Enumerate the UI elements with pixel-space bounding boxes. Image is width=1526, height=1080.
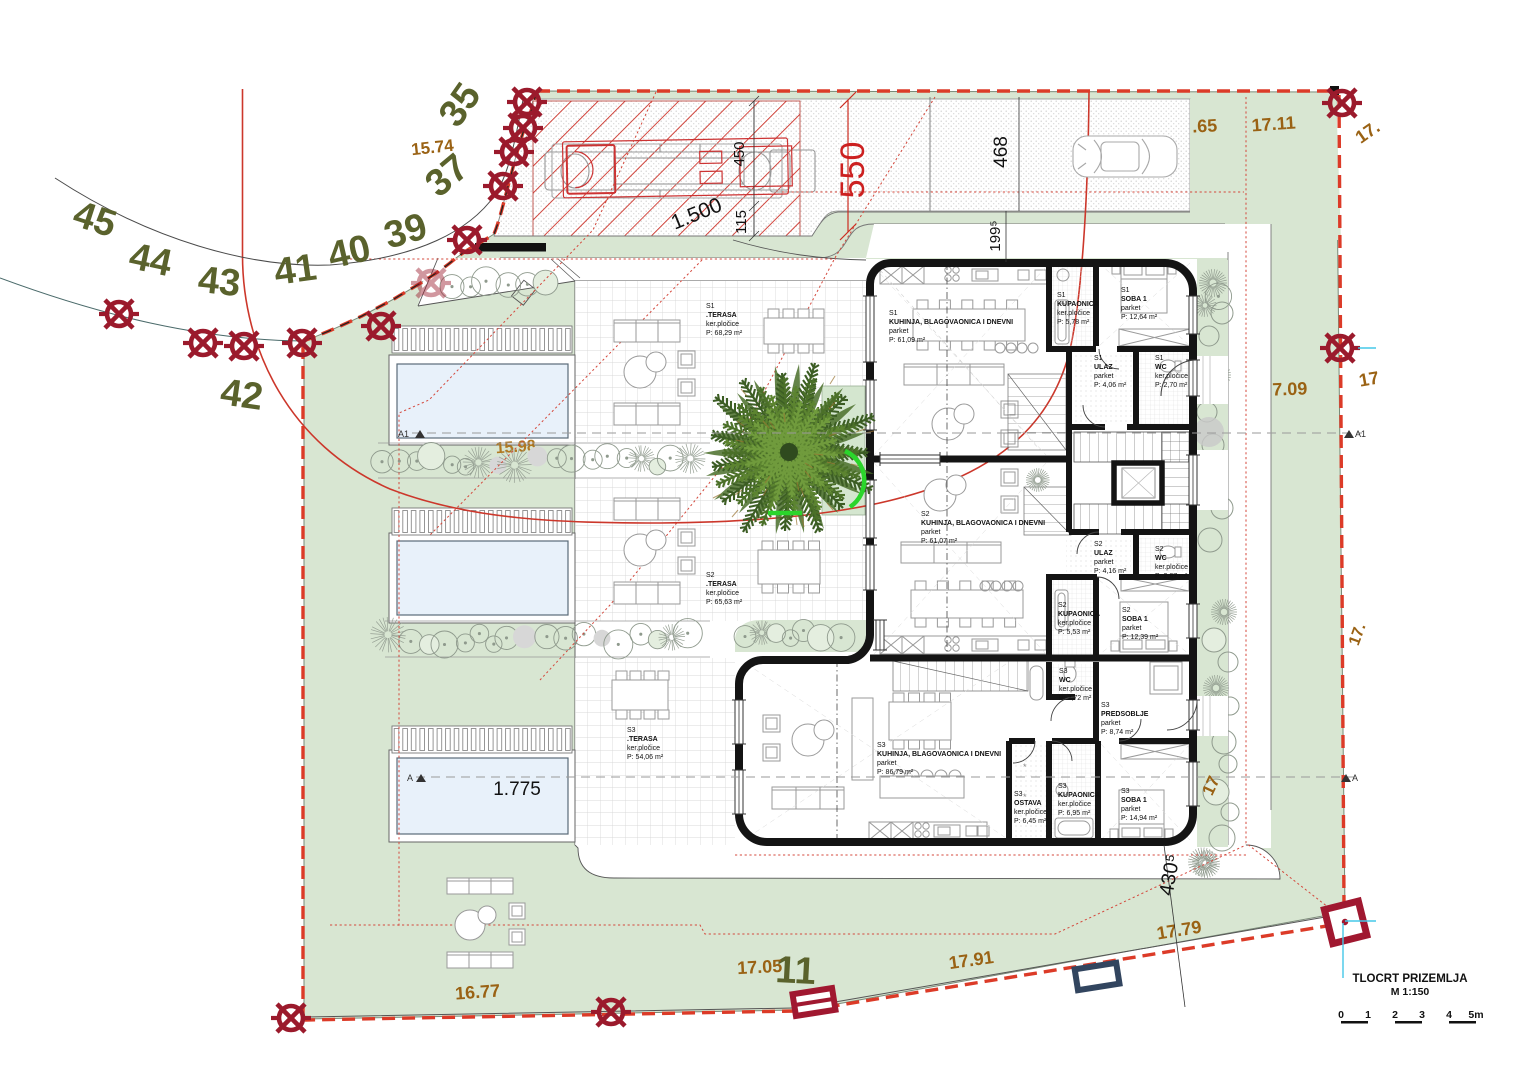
svg-text:P: 8,74 m²: P: 8,74 m² bbox=[1101, 729, 1134, 736]
svg-text:KUHINJA, BLAGOVAONICA I DNEVNI: KUHINJA, BLAGOVAONICA I DNEVNI bbox=[877, 751, 1001, 758]
svg-text:ker.pločice: ker.pločice bbox=[1155, 373, 1188, 380]
svg-text:4: 4 bbox=[1446, 1009, 1452, 1021]
svg-text:KUPAONICA: KUPAONICA bbox=[1057, 301, 1099, 308]
svg-text:.65: .65 bbox=[1192, 115, 1218, 136]
svg-text:P: 2,70 m²: P: 2,70 m² bbox=[1155, 382, 1188, 389]
svg-text:A: A bbox=[1352, 773, 1358, 783]
svg-text:S3: S3 bbox=[1101, 702, 1110, 709]
svg-text:KUHINJA, BLAGOVAONICA I DNEVNI: KUHINJA, BLAGOVAONICA I DNEVNI bbox=[921, 520, 1045, 527]
svg-text:P: 65,63 m²: P: 65,63 m² bbox=[706, 599, 743, 606]
svg-text:ker.pločice: ker.pločice bbox=[1059, 686, 1092, 693]
svg-text:P: 12,39 m²: P: 12,39 m² bbox=[1122, 634, 1159, 641]
svg-text:P: 86,79 m²: P: 86,79 m² bbox=[877, 769, 914, 776]
svg-text:A: A bbox=[407, 773, 413, 783]
svg-text:S1: S1 bbox=[1121, 287, 1130, 294]
svg-text:P: 14,94 m²: P: 14,94 m² bbox=[1121, 815, 1158, 822]
svg-text:SOBA 1: SOBA 1 bbox=[1121, 797, 1147, 804]
svg-text:ker.pločice: ker.pločice bbox=[1058, 620, 1091, 627]
svg-text:TLOCRT PRIZEMLJA: TLOCRT PRIZEMLJA bbox=[1353, 973, 1468, 985]
svg-text:199⁵: 199⁵ bbox=[987, 220, 1004, 251]
svg-text:41: 41 bbox=[271, 246, 319, 293]
svg-text:S2: S2 bbox=[921, 511, 930, 518]
svg-text:KUPAONICA: KUPAONICA bbox=[1058, 792, 1100, 799]
svg-text:P: 6,95 m²: P: 6,95 m² bbox=[1058, 810, 1091, 817]
svg-text:S3: S3 bbox=[877, 742, 886, 749]
svg-text:P: 61,09 m²: P: 61,09 m² bbox=[889, 337, 926, 344]
svg-text:468: 468 bbox=[991, 136, 1012, 168]
svg-text:S2: S2 bbox=[1155, 546, 1164, 553]
svg-text:0: 0 bbox=[1338, 1009, 1344, 1021]
svg-text:P: 12,64 m²: P: 12,64 m² bbox=[1121, 314, 1158, 321]
svg-text:KUHINJA, BLAGOVAONICA I DNEVNI: KUHINJA, BLAGOVAONICA I DNEVNI bbox=[889, 319, 1013, 326]
svg-text:S2: S2 bbox=[1058, 602, 1067, 609]
svg-text:OSTAVA: OSTAVA bbox=[1014, 800, 1042, 807]
svg-text:S3: S3 bbox=[1121, 788, 1130, 795]
svg-text:P: 68,29 m²: P: 68,29 m² bbox=[706, 330, 743, 337]
svg-text:S1: S1 bbox=[889, 310, 898, 317]
svg-text:ULAZ: ULAZ bbox=[1094, 550, 1113, 557]
svg-text:S1: S1 bbox=[706, 303, 715, 310]
svg-text:A1: A1 bbox=[398, 429, 409, 439]
svg-text:.TERASA: .TERASA bbox=[706, 581, 737, 588]
svg-text:parket: parket bbox=[889, 328, 909, 335]
svg-text:parket: parket bbox=[1121, 305, 1141, 312]
svg-text:.TERASA: .TERASA bbox=[706, 312, 737, 319]
svg-text:S2: S2 bbox=[1094, 541, 1103, 548]
svg-text:SOBA 1: SOBA 1 bbox=[1121, 296, 1147, 303]
svg-text:42: 42 bbox=[218, 371, 266, 418]
svg-text:ker.pločice: ker.pločice bbox=[1155, 564, 1188, 571]
svg-text:KUPAONICA: KUPAONICA bbox=[1058, 611, 1100, 618]
svg-text:S2: S2 bbox=[1122, 607, 1131, 614]
svg-text:parket: parket bbox=[1121, 806, 1141, 813]
svg-text:450: 450 bbox=[731, 141, 748, 166]
svg-text:P: 4,16 m²: P: 4,16 m² bbox=[1094, 568, 1127, 575]
svg-text:ker.pločice: ker.pločice bbox=[706, 321, 739, 328]
svg-text:S2: S2 bbox=[706, 572, 715, 579]
svg-text:P: 4,06 m²: P: 4,06 m² bbox=[1094, 382, 1127, 389]
svg-text:17.05: 17.05 bbox=[737, 956, 783, 978]
svg-text:5m: 5m bbox=[1468, 1009, 1483, 1021]
svg-text:115: 115 bbox=[733, 210, 750, 234]
svg-text:7.09: 7.09 bbox=[1272, 378, 1308, 399]
svg-text:P: 6,45 m²: P: 6,45 m² bbox=[1014, 818, 1047, 825]
svg-text:2: 2 bbox=[1392, 1009, 1398, 1021]
svg-text:A1: A1 bbox=[1355, 429, 1366, 439]
svg-text:P: 2,87 m²: P: 2,87 m² bbox=[1155, 573, 1188, 580]
svg-text:17.11: 17.11 bbox=[1251, 113, 1296, 136]
svg-text:S3: S3 bbox=[1014, 791, 1023, 798]
svg-text:parket: parket bbox=[877, 760, 897, 767]
svg-text:550: 550 bbox=[834, 142, 872, 199]
svg-text:ker.pločice: ker.pločice bbox=[1058, 801, 1091, 808]
svg-text:*: * bbox=[1023, 762, 1027, 772]
svg-text:P: 5,53 m²: P: 5,53 m² bbox=[1058, 629, 1091, 636]
svg-text:S1: S1 bbox=[1094, 355, 1103, 362]
svg-text:parket: parket bbox=[921, 529, 941, 536]
svg-text:PREDSOBLJE: PREDSOBLJE bbox=[1101, 711, 1149, 718]
svg-text:43: 43 bbox=[196, 259, 242, 305]
svg-text:1.775: 1.775 bbox=[493, 779, 541, 800]
svg-text:P: 54,06 m²: P: 54,06 m² bbox=[627, 754, 664, 761]
svg-text:P: 5,78 m²: P: 5,78 m² bbox=[1057, 319, 1090, 326]
svg-text:S3: S3 bbox=[1059, 668, 1068, 675]
svg-text:17: 17 bbox=[1357, 368, 1380, 391]
svg-text:P: 61,07 m²: P: 61,07 m² bbox=[921, 538, 958, 545]
svg-text:WC: WC bbox=[1155, 364, 1167, 371]
svg-text:.TERASA: .TERASA bbox=[627, 736, 658, 743]
svg-text:parket: parket bbox=[1094, 559, 1114, 566]
svg-text:ker.pločice: ker.pločice bbox=[706, 590, 739, 597]
svg-text:S3: S3 bbox=[1058, 783, 1067, 790]
svg-text:S3: S3 bbox=[627, 727, 636, 734]
svg-text:44: 44 bbox=[125, 235, 175, 285]
svg-text:WC: WC bbox=[1155, 555, 1167, 562]
svg-text:16.77: 16.77 bbox=[454, 980, 500, 1003]
svg-text:3: 3 bbox=[1419, 1009, 1425, 1021]
svg-text:S1: S1 bbox=[1057, 292, 1066, 299]
svg-text:1: 1 bbox=[1365, 1009, 1371, 1021]
svg-text:ker.pločice: ker.pločice bbox=[1014, 809, 1047, 816]
svg-text:S1: S1 bbox=[1155, 355, 1164, 362]
svg-text:parket: parket bbox=[1122, 625, 1142, 632]
svg-text:P: 2,72 m²: P: 2,72 m² bbox=[1059, 695, 1092, 702]
svg-text:ker.pločice: ker.pločice bbox=[627, 745, 660, 752]
svg-text:M 1:150: M 1:150 bbox=[1391, 986, 1430, 998]
svg-text:parket: parket bbox=[1101, 720, 1121, 727]
svg-text:ker.pločice: ker.pločice bbox=[1057, 310, 1090, 317]
svg-text:SOBA 1: SOBA 1 bbox=[1122, 616, 1148, 623]
svg-text:parket: parket bbox=[1094, 373, 1114, 380]
svg-text:WC: WC bbox=[1059, 677, 1071, 684]
svg-text:ULAZ: ULAZ bbox=[1094, 364, 1113, 371]
